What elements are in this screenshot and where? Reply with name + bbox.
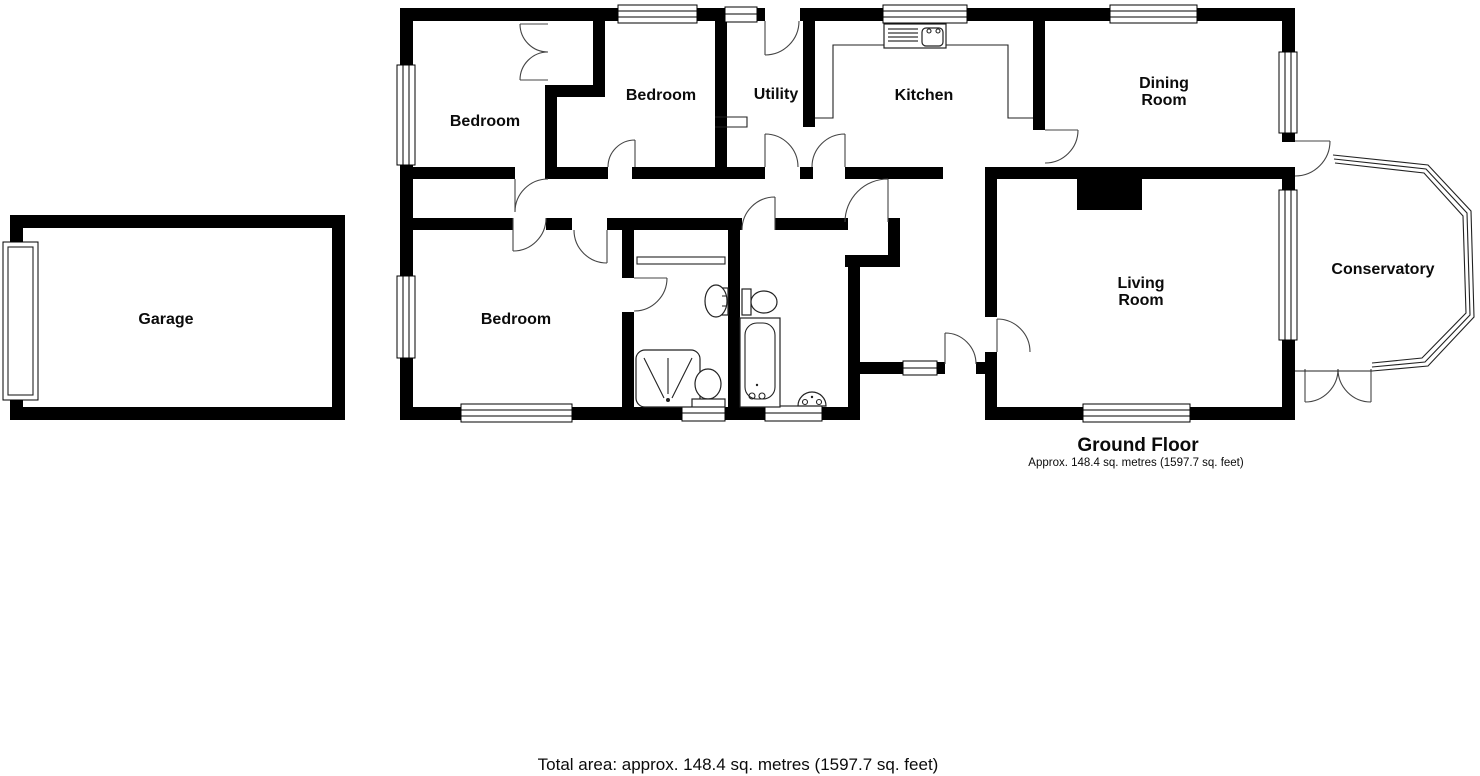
room-label-dining-line2: Room <box>1141 92 1186 109</box>
door-arc <box>845 179 888 222</box>
window <box>461 404 572 422</box>
door-arc <box>765 134 798 167</box>
wash-basin-icon <box>705 285 728 317</box>
total-area-note: Total area: approx. 148.4 sq. metres (15… <box>538 755 939 774</box>
floorplan-page: Garage Bedroom Bedroom Utility Kitchen D… <box>0 0 1480 776</box>
window <box>397 65 415 165</box>
floor-area-note: Approx. 148.4 sq. metres (1597.7 sq. fee… <box>1028 457 1244 469</box>
wardrobe-double-doors-icon <box>520 24 548 80</box>
floorplan-drawing: Garage Bedroom Bedroom Utility Kitchen D… <box>0 0 1480 776</box>
door-arc <box>742 197 775 230</box>
front-door-icon <box>945 333 976 364</box>
room-label-bedroom1: Bedroom <box>450 113 520 130</box>
room-label-bedroom3: Bedroom <box>481 311 551 328</box>
door-arc <box>1045 130 1078 163</box>
bath-icon <box>740 318 780 407</box>
room-label-garage: Garage <box>138 311 193 328</box>
door-arc <box>574 230 607 263</box>
windows <box>397 5 1297 422</box>
room-label-conservatory: Conservatory <box>1331 261 1434 278</box>
room-label-bedroom2: Bedroom <box>626 87 696 104</box>
kitchen-counter <box>815 45 1033 118</box>
floor-title: Ground Floor <box>1077 435 1199 456</box>
wash-basin-icon <box>798 392 826 406</box>
door-arc <box>634 278 667 311</box>
room-label-dining-line1: Dining <box>1139 75 1189 92</box>
room-label-kitchen: Kitchen <box>895 87 954 104</box>
window <box>1279 52 1297 133</box>
window <box>618 5 697 23</box>
window <box>397 276 415 358</box>
shower-room-cupboard <box>637 257 725 264</box>
door-arc <box>1305 369 1338 402</box>
annotations: Ground Floor Approx. 148.4 sq. metres (1… <box>538 435 1244 774</box>
room-label-utility: Utility <box>754 86 799 103</box>
door-arc <box>765 21 799 55</box>
window <box>883 5 967 23</box>
door-arc <box>1295 141 1330 176</box>
room-label-living-line1: Living <box>1117 275 1164 292</box>
window <box>1083 404 1190 422</box>
window <box>1279 190 1297 340</box>
door-arc <box>1338 369 1371 402</box>
door-arc <box>515 179 548 212</box>
room-label-living-line2: Room <box>1118 292 1163 309</box>
window <box>1110 5 1197 23</box>
kitchen-sink-icon <box>884 24 946 48</box>
door-arc <box>608 140 635 167</box>
toilet-icon <box>742 289 777 315</box>
chimney-breast <box>1077 179 1142 210</box>
garage-door-icon <box>3 242 38 400</box>
window <box>903 361 937 375</box>
door-arc <box>812 134 845 167</box>
door-arc <box>513 218 546 251</box>
window <box>682 406 725 421</box>
window <box>765 406 822 421</box>
exterior-walls <box>400 8 1295 420</box>
shower-icon <box>636 350 700 407</box>
window <box>725 7 757 22</box>
doors <box>513 21 1371 402</box>
door-arc <box>997 319 1030 352</box>
